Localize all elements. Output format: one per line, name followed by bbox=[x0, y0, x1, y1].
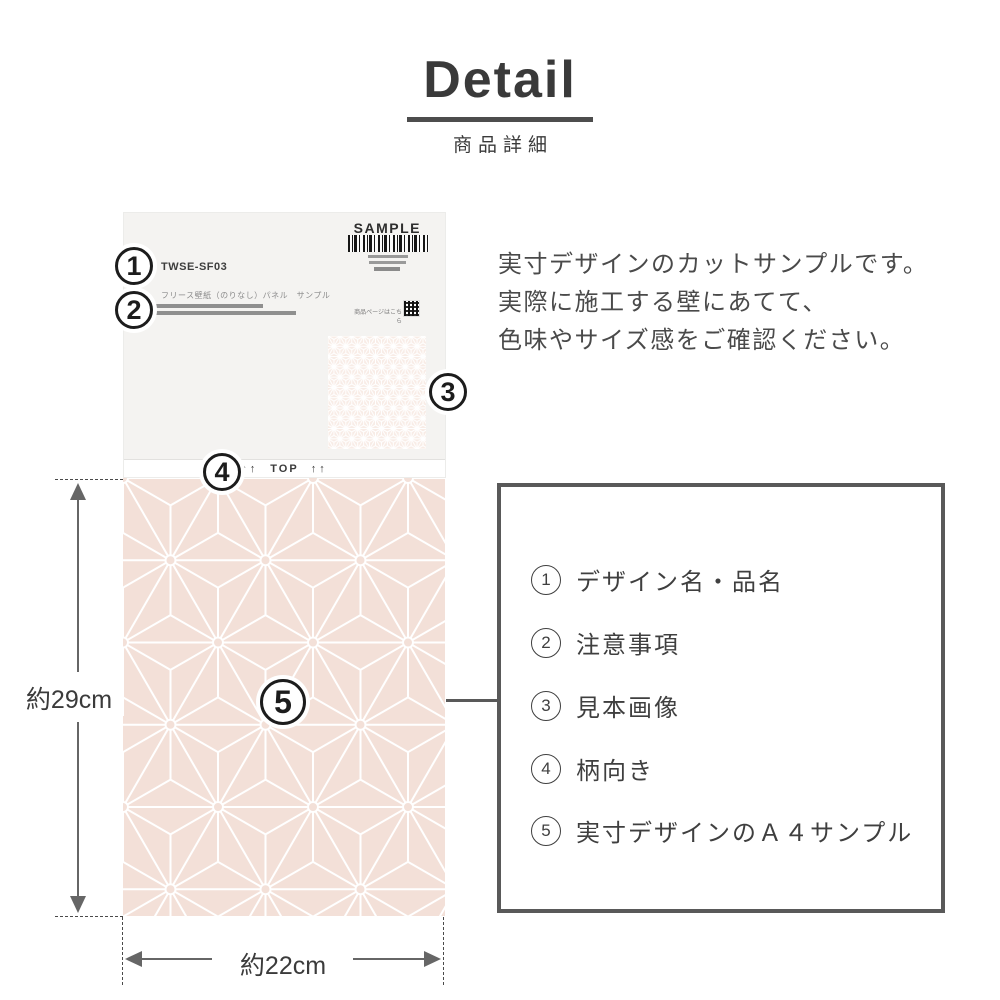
detail-infographic: Detail 商品詳細 SAMPLE TWSE-SF03 フリース壁紙（のりなし… bbox=[0, 0, 1000, 1000]
sample-card: SAMPLE TWSE-SF03 フリース壁紙（のりなし）パネル サンプル 商品… bbox=[123, 212, 446, 478]
arrow-down-icon bbox=[70, 896, 86, 913]
page-title: Detail bbox=[0, 50, 1000, 110]
dimension-dash-bottom bbox=[55, 916, 123, 917]
top-label: TOP bbox=[270, 463, 298, 475]
legend-box: 1 デザイン名・品名 2 注意事項 3 見本画像 4 柄向き 5 実寸デザインの… bbox=[497, 483, 945, 913]
redacted-text-bar bbox=[156, 311, 296, 315]
sample-label: SAMPLE bbox=[354, 220, 421, 236]
pattern-direction-strip: ↑↑ TOP ↑↑ bbox=[124, 459, 445, 477]
height-arrow-line bbox=[77, 722, 79, 908]
legend-number-2: 2 bbox=[531, 628, 561, 658]
legend-item-2: 2 注意事項 bbox=[531, 625, 680, 660]
legend-number-5: 5 bbox=[531, 816, 561, 846]
dimension-dash-left bbox=[122, 917, 123, 985]
legend-label-3: 見本画像 bbox=[576, 688, 680, 723]
arrow-right-icon bbox=[424, 951, 441, 967]
legend-item-1: 1 デザイン名・品名 bbox=[531, 562, 784, 597]
product-code: TWSE-SF03 bbox=[161, 261, 227, 273]
height-dimension-label: 約29cm bbox=[14, 680, 124, 716]
product-type: フリース壁紙（のりなし）パネル サンプル bbox=[161, 290, 330, 301]
notes-placeholder-line bbox=[150, 304, 263, 308]
callout-5-connector-line bbox=[446, 699, 499, 702]
legend-item-3: 3 見本画像 bbox=[531, 688, 680, 723]
callout-4: 4 bbox=[203, 453, 241, 491]
arrow-left-icon bbox=[125, 951, 142, 967]
legend-label-1: デザイン名・品名 bbox=[576, 562, 784, 597]
legend-label-4: 柄向き bbox=[576, 751, 654, 786]
legend-label-2: 注意事項 bbox=[576, 625, 680, 660]
legend-number-3: 3 bbox=[531, 691, 561, 721]
barcode bbox=[348, 235, 429, 252]
notes-placeholder-line bbox=[150, 311, 296, 315]
up-arrows-icon: ↑↑ bbox=[241, 463, 258, 475]
dimension-dash-top bbox=[55, 479, 123, 480]
callout-5: 5 bbox=[260, 679, 306, 725]
height-arrow-line bbox=[77, 490, 79, 672]
width-dimension-label: 約22cm bbox=[213, 946, 353, 982]
callout-2: 2 bbox=[115, 291, 153, 329]
up-arrows-icon: ↑↑ bbox=[311, 463, 328, 475]
barcode-caption-bar bbox=[368, 255, 408, 258]
width-arrow-line bbox=[353, 958, 424, 960]
callout-3: 3 bbox=[429, 373, 467, 411]
legend-item-5: 5 実寸デザインのＡ４サンプル bbox=[531, 813, 913, 848]
description-text: 実寸デザインのカットサンプルです。 実際に施工する壁にあてて、 色味やサイズ感を… bbox=[498, 246, 928, 360]
dimension-dash-right bbox=[443, 917, 444, 985]
description-line: 実際に施工する壁にあてて、 bbox=[498, 284, 928, 322]
redacted-text-bar bbox=[156, 304, 263, 308]
description-line: 実寸デザインのカットサンプルです。 bbox=[498, 246, 928, 284]
page-subtitle: 商品詳細 bbox=[0, 130, 1000, 157]
legend-item-4: 4 柄向き bbox=[531, 751, 654, 786]
legend-number-1: 1 bbox=[531, 565, 561, 595]
barcode-caption-bar bbox=[374, 267, 400, 271]
barcode-caption-bar bbox=[369, 261, 406, 264]
qr-caption: 商品ページはこちら bbox=[354, 307, 402, 325]
pattern-swatch-thumbnail bbox=[328, 336, 426, 449]
qr-code-icon bbox=[404, 301, 419, 316]
description-line: 色味やサイズ感をご確認ください。 bbox=[498, 322, 928, 360]
callout-1: 1 bbox=[115, 247, 153, 285]
legend-number-4: 4 bbox=[531, 754, 561, 784]
legend-label-5: 実寸デザインのＡ４サンプル bbox=[576, 813, 913, 848]
title-underline bbox=[407, 117, 593, 122]
width-arrow-line bbox=[141, 958, 212, 960]
arrow-up-icon bbox=[70, 483, 86, 500]
